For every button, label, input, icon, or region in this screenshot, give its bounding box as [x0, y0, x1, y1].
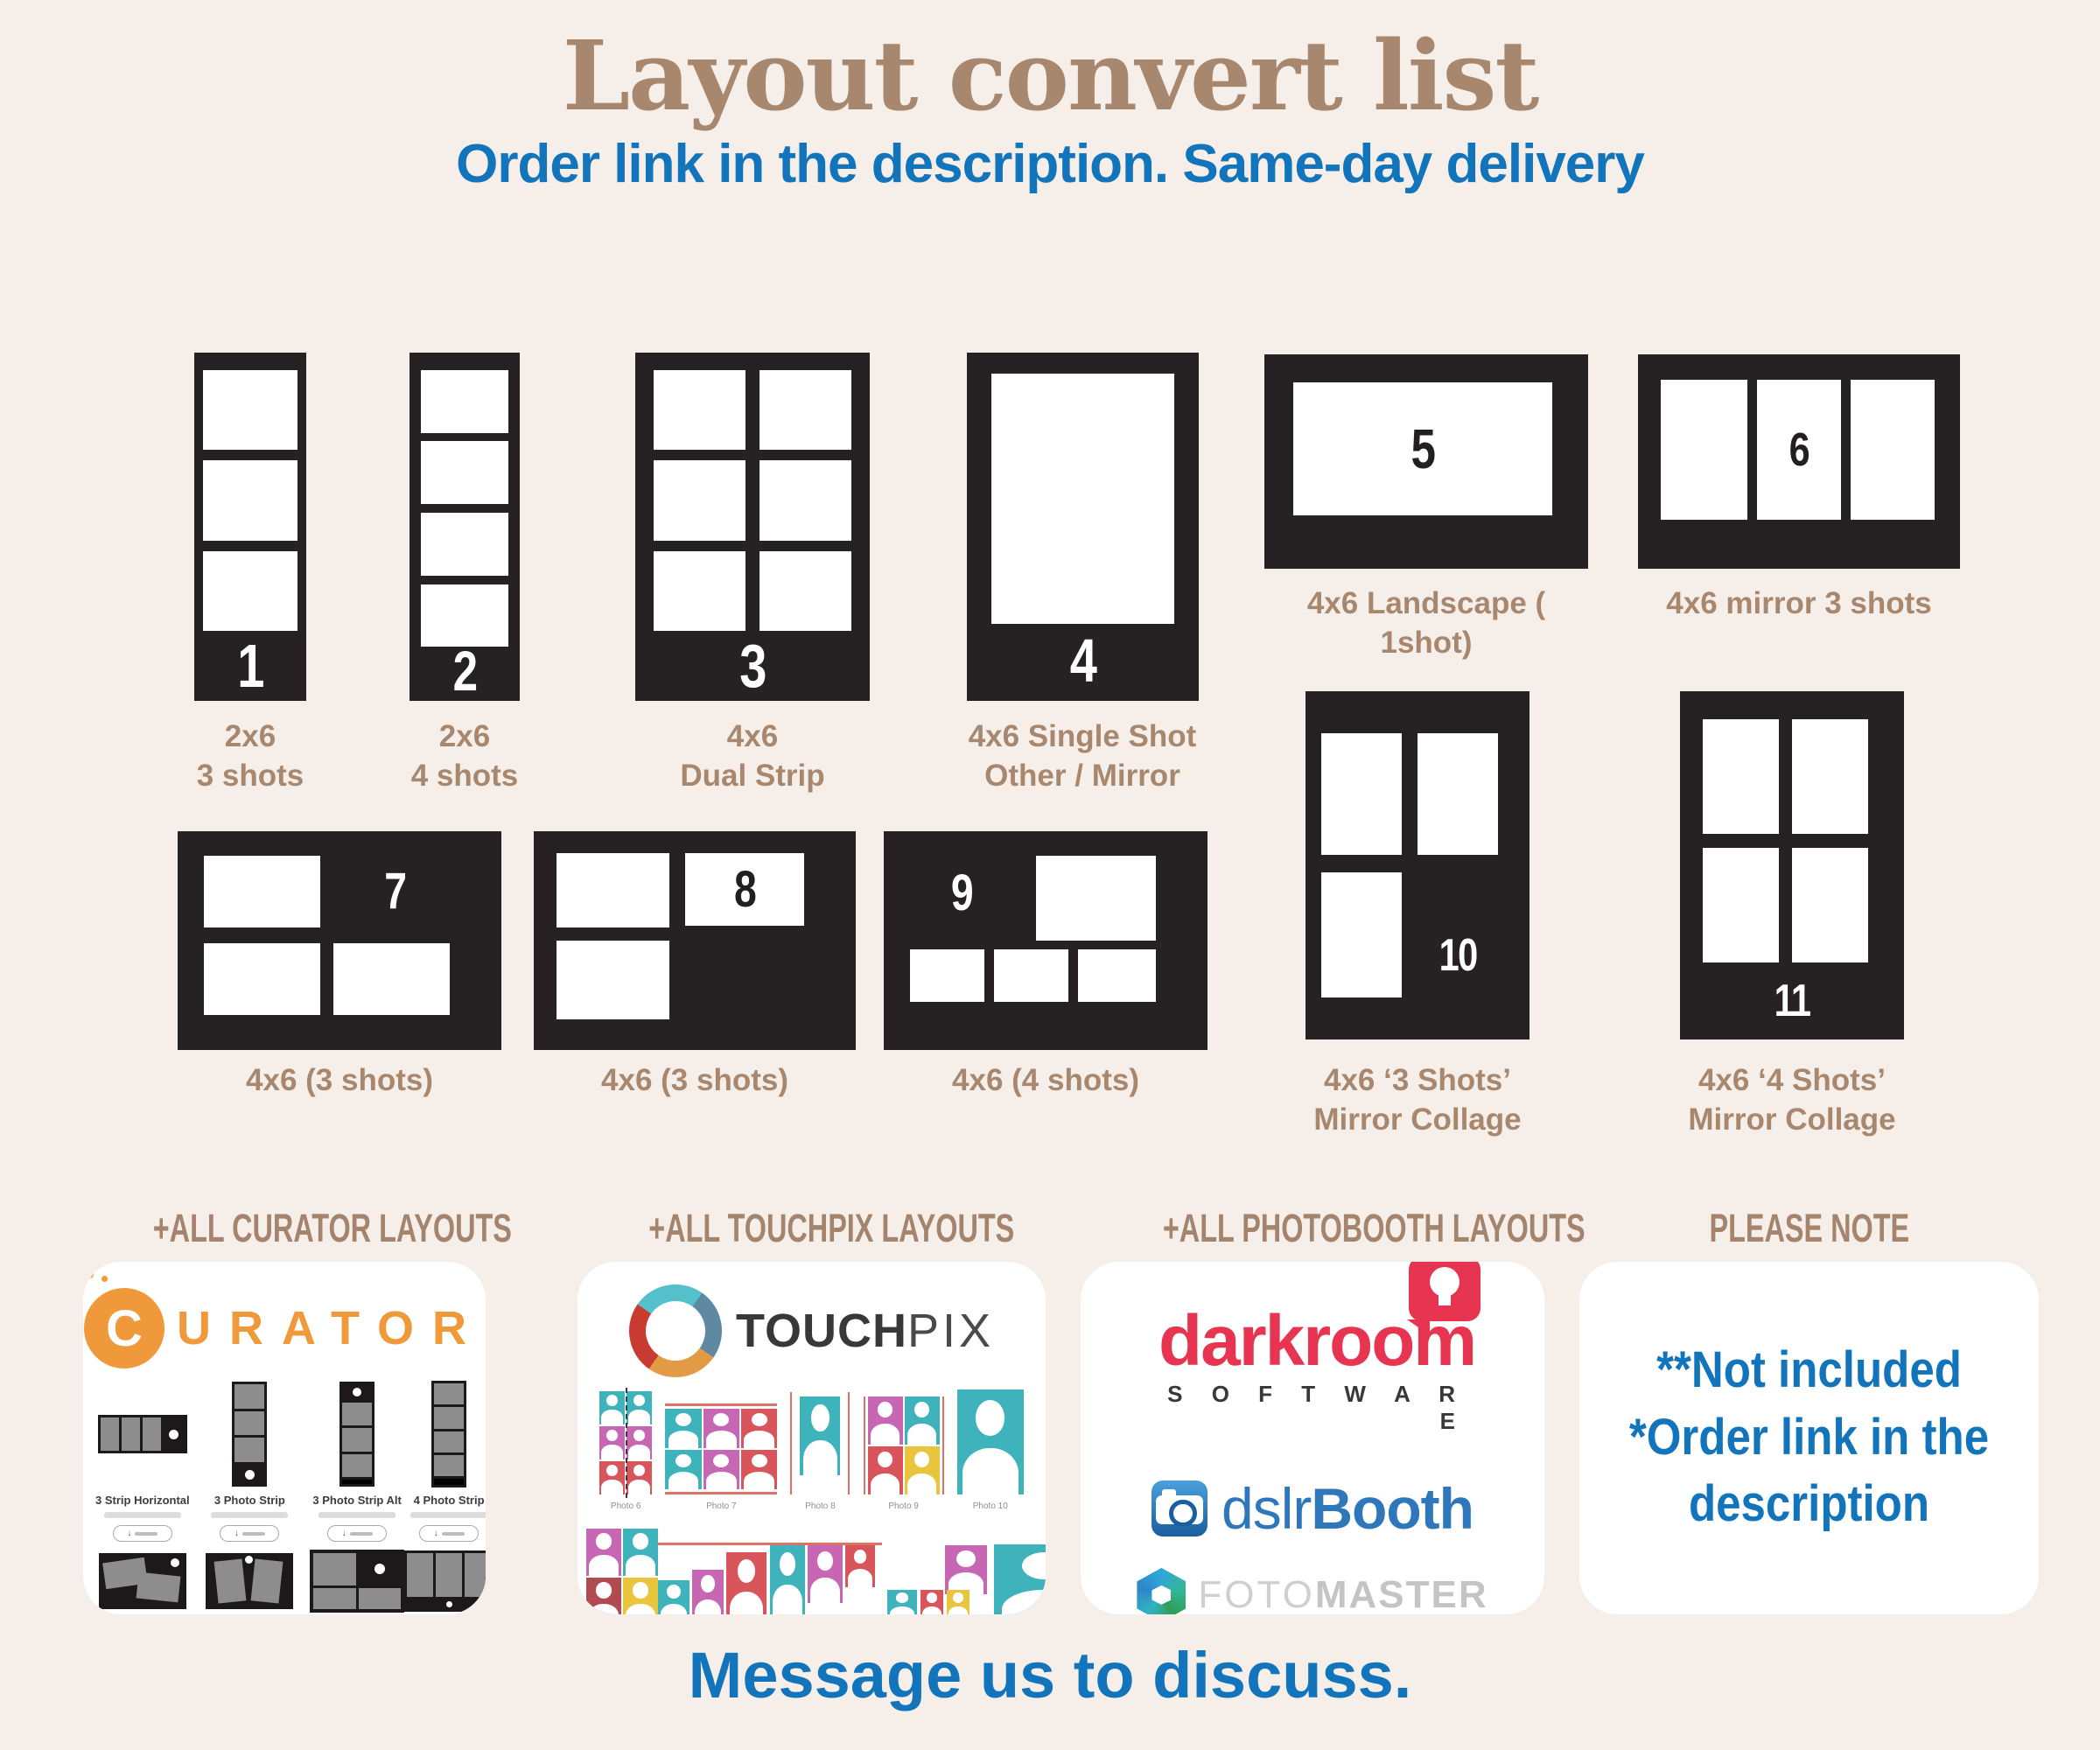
- photo-slot: [203, 551, 297, 632]
- layout-card-5: 5: [1264, 354, 1588, 569]
- photo-slot: [204, 943, 320, 1016]
- photo-slot: [203, 370, 297, 451]
- touchpix-thumb: Photo 12: [658, 1543, 770, 1614]
- photo-slot: [333, 943, 450, 1016]
- photo-slot: [421, 370, 509, 433]
- photo-slot: [1661, 380, 1747, 519]
- darkroom-software-label: S O F T W A R E: [1158, 1381, 1466, 1435]
- touchpix-thumb: Photo 11: [586, 1529, 658, 1614]
- photo-slot: [654, 551, 745, 632]
- photo-slot: [1417, 733, 1498, 855]
- footer-message: Message us to discuss.: [0, 1638, 2100, 1712]
- photo-slot: [421, 584, 509, 647]
- photo-slot: [991, 374, 1174, 625]
- layout-card-7: 7: [178, 831, 501, 1050]
- curator-thumb: 3 Strip Horizontal ↓: [95, 1382, 190, 1542]
- photo-slot: [654, 460, 745, 541]
- section-header-curator: +ALL CURATOR LAYOUTS: [83, 1206, 486, 1251]
- download-icon: ↓: [234, 1529, 239, 1538]
- layout-label-9: 4x6 (4 shots): [914, 1061, 1177, 1101]
- layout-card-6: 6: [1638, 354, 1960, 569]
- touchpix-thumb: Photo 9: [864, 1396, 944, 1511]
- photo-slot: [556, 941, 669, 1019]
- layout-card-9: 9: [884, 831, 1207, 1050]
- touchpix-thumb: Photo 8: [790, 1392, 850, 1511]
- download-button: ↓: [113, 1525, 172, 1542]
- photo-slot: [556, 853, 669, 927]
- photo-slot: [421, 513, 509, 576]
- layout-card-4: 4: [967, 353, 1199, 701]
- layout-card-2: 2: [409, 353, 520, 701]
- fotomaster-logo: FOTOMASTER: [1081, 1568, 1544, 1614]
- dslrbooth-camera-icon: [1151, 1480, 1207, 1536]
- photo-slot: [203, 460, 297, 541]
- curator-logo-text: URATOR: [177, 1301, 485, 1355]
- download-icon: ↓: [342, 1529, 346, 1538]
- note-text: **Not included *Order link in the descri…: [1579, 1337, 2039, 1538]
- layout-card-10: 10: [1305, 691, 1529, 1039]
- layout-number: 1: [206, 634, 295, 697]
- photo-slot: [1321, 872, 1402, 997]
- touchpix-thumbs-row1: Photo 6 Photo 7 Photo 8 Photo 9: [586, 1389, 1037, 1511]
- curator-logo: C URATOR: [83, 1288, 486, 1368]
- photo-slot: [1321, 733, 1402, 855]
- curator-thumbs-grid: 3 Strip Horizontal ↓ 3 Photo Strip ↓: [95, 1382, 473, 1614]
- layout-number: 3: [659, 634, 846, 697]
- page-title: Layout convert list: [0, 19, 2100, 132]
- layout-number: 7: [363, 856, 425, 928]
- download-icon: ↓: [434, 1529, 438, 1538]
- curator-thumb: 2 Print Angled ↓: [95, 1550, 190, 1614]
- photo-slot: [759, 370, 851, 451]
- photo-slot: [1036, 856, 1156, 941]
- darkroom-logo: darkroom S O F T W A R E: [1158, 1307, 1466, 1435]
- layout-label-2: 2x64 shots: [342, 717, 587, 796]
- touchpix-logo: TOUCHPIX: [577, 1284, 1046, 1377]
- curator-thumb: 4 Photo Strip ↓: [404, 1382, 486, 1542]
- page-subtitle: Order link in the description. Same-day …: [0, 133, 2100, 195]
- photo-slot: [910, 949, 984, 1002]
- touchpix-ring-icon: [629, 1284, 722, 1377]
- layout-number: 8: [697, 853, 793, 926]
- darkroom-bulb-icon: [1409, 1262, 1480, 1321]
- layout-card-11: 11: [1680, 691, 1904, 1039]
- section-header-touchpix: +ALL TOUCHPIX LAYOUTS: [577, 1206, 1046, 1251]
- section-header-note: PLEASE NOTE: [1579, 1206, 2039, 1251]
- layout-label-5: 4x6 Landscape ( 1shot): [1264, 584, 1588, 663]
- touchpix-thumb: Photo 6: [599, 1391, 652, 1511]
- layout-label-6: 4x6 mirror 3 shots: [1637, 584, 1961, 624]
- layout-number: 10: [1422, 921, 1494, 991]
- download-button: ↓: [220, 1525, 279, 1542]
- layout-number: 6: [1766, 380, 1833, 519]
- download-icon: ↓: [127, 1529, 131, 1538]
- touchpix-card: TOUCHPIX Photo 6 Photo 7: [577, 1262, 1046, 1614]
- layout-card-8: 8: [534, 831, 856, 1050]
- layout-number: 11: [1703, 973, 1882, 1029]
- poster: Layout convert list Order link in the de…: [0, 0, 2100, 1750]
- layout-number: 9: [935, 853, 987, 932]
- photo-slot: [1792, 719, 1868, 834]
- curator-thumb: 2 Print Angled Portrait ↓: [190, 1550, 310, 1614]
- photo-slot: [994, 949, 1068, 1002]
- layout-number: 5: [1319, 382, 1527, 515]
- photo-slot: [1703, 719, 1779, 834]
- photo-slot: [421, 441, 509, 504]
- photo-slot: [1851, 380, 1935, 519]
- photo-slot: [654, 370, 745, 451]
- curator-thumb: 3 Print Portrait ↓: [404, 1550, 486, 1614]
- layout-card-1: 1: [194, 353, 306, 701]
- photo-slot: [1792, 848, 1868, 962]
- photobooth-card: darkroom S O F T W A R E dslrBooth FOTOM…: [1081, 1262, 1544, 1614]
- layout-label-11: 4x6 ‘4 Shots’Mirror Collage: [1643, 1061, 1941, 1140]
- curator-logo-icon: C: [84, 1288, 164, 1368]
- layout-card-3: 3: [635, 353, 870, 701]
- layout-label-4: 4x6 Single ShotOther / Mirror: [929, 717, 1235, 796]
- photo-slot: [759, 460, 851, 541]
- dslrbooth-logo: dslrBooth: [1081, 1475, 1544, 1542]
- touchpix-thumbs-row2: Photo 11 Photo 12 Photo 13: [586, 1529, 1037, 1614]
- touchpix-thumb: Photo 14: [882, 1545, 994, 1614]
- curator-thumb: 3 Photo Strip Alt ↓: [310, 1382, 404, 1542]
- layout-label-7: 4x6 (3 shots): [208, 1061, 471, 1101]
- touchpix-thumb: Photo 7: [665, 1403, 777, 1511]
- curator-thumb: 3 Print ↓: [310, 1550, 404, 1614]
- layout-label-3: 4x6Dual Strip: [621, 717, 884, 796]
- section-header-photobooth: +ALL PHOTOBOOTH LAYOUTS: [1081, 1206, 1544, 1251]
- note-card: **Not included *Order link in the descri…: [1579, 1262, 2039, 1614]
- photo-slot: [1703, 848, 1779, 962]
- photo-slot: [759, 551, 851, 632]
- touchpix-thumb: Photo 15: [994, 1544, 1046, 1614]
- layout-label-8: 4x6 (3 shots): [563, 1061, 826, 1101]
- curator-thumb: 3 Photo Strip ↓: [190, 1382, 310, 1542]
- photo-slot: [1078, 949, 1156, 1002]
- photo-slot: [204, 856, 320, 928]
- download-button: ↓: [327, 1525, 387, 1542]
- layout-label-10: 4x6 ‘3 Shots’Mirror Collage: [1269, 1061, 1566, 1140]
- touchpix-thumb: Photo 13: [770, 1543, 882, 1614]
- download-button: ↓: [419, 1525, 479, 1542]
- curator-card: C URATOR 3 Strip Horizontal ↓ 3 Photo: [83, 1262, 486, 1614]
- fotomaster-aperture-icon: [1137, 1568, 1186, 1614]
- layout-number: 2: [421, 645, 509, 697]
- touchpix-thumb: Photo 10: [957, 1389, 1024, 1511]
- layout-number: 4: [990, 627, 1176, 694]
